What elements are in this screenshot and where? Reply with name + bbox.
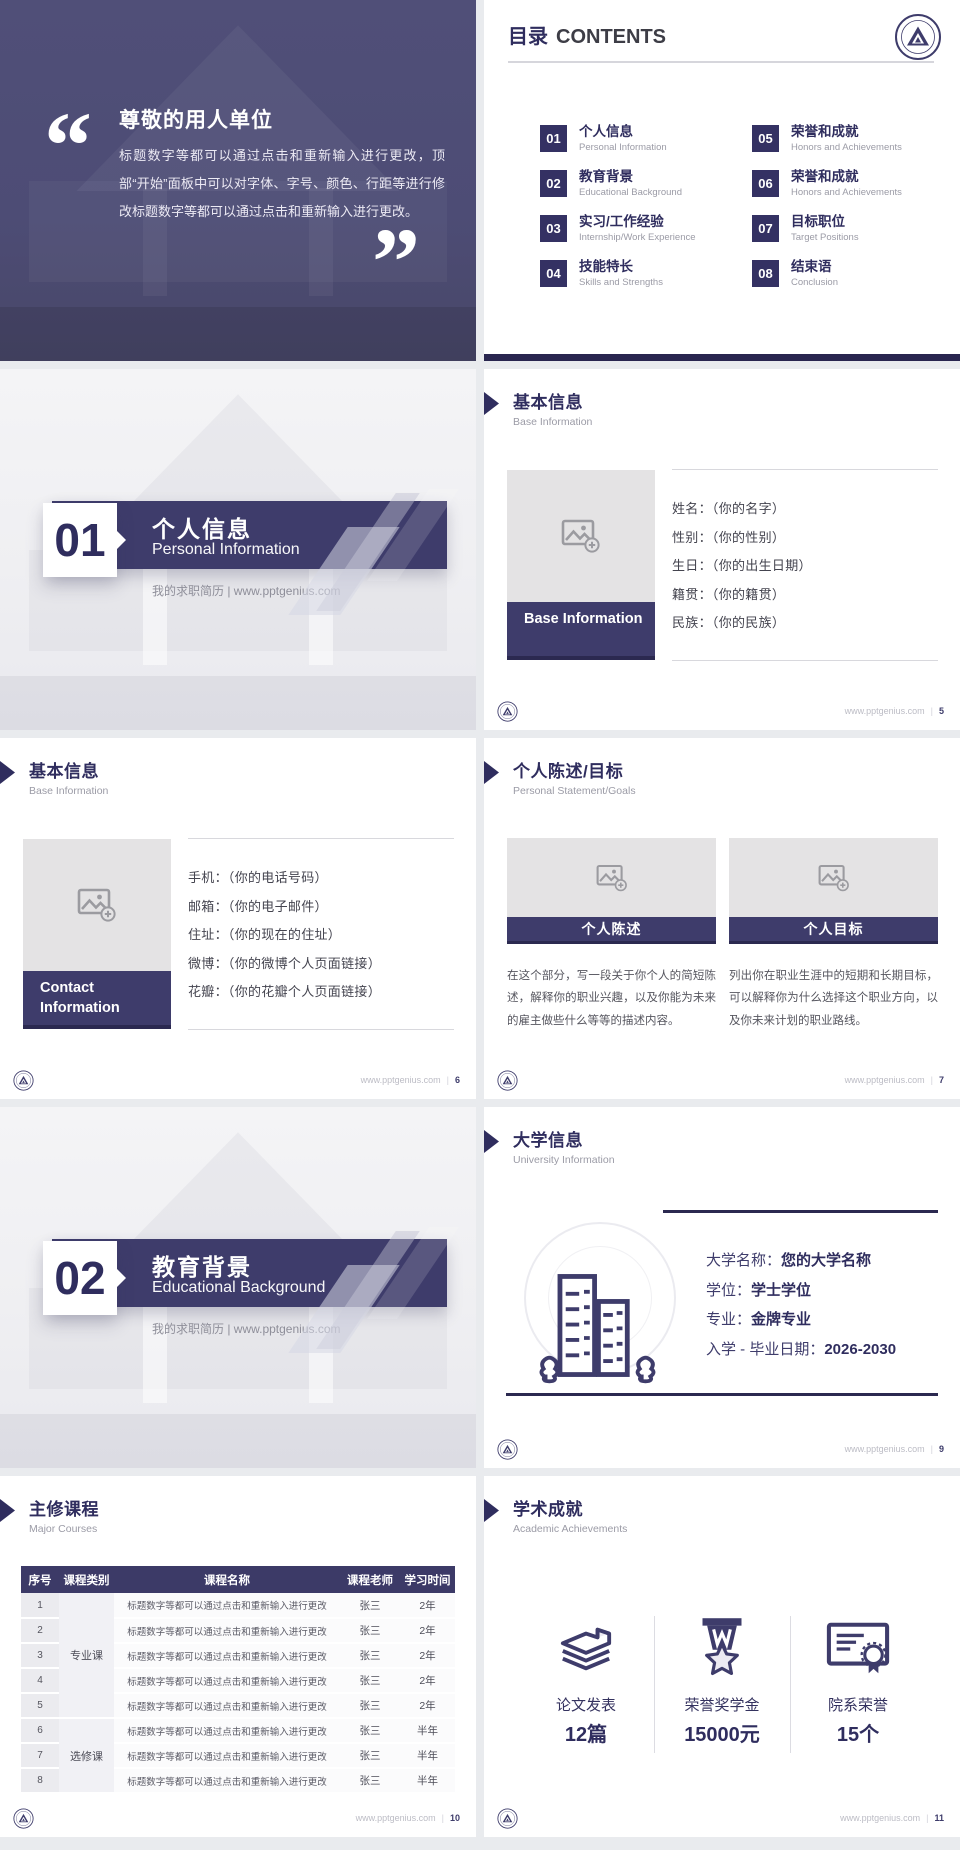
photo-placeholder-block: Contact Information (23, 839, 171, 1029)
footer-divider: | (931, 706, 933, 716)
courses-table: 序号 课程类别 课程名称 课程老师 学习时间 1 专业课 标题数字等都可以通过点… (21, 1566, 455, 1794)
header-title-zh: 主修课程 (29, 1495, 99, 1520)
footer-divider: | (447, 1075, 449, 1085)
item-title-en: Honors and Achievements (791, 187, 902, 198)
item-number-badge: 01 (540, 125, 567, 152)
header-title-zh: 基本信息 (29, 757, 108, 782)
section-title-en: Personal Information (152, 541, 300, 559)
cell-no: 5 (21, 1693, 59, 1718)
section-tagline: 我的求职简历 | www.pptgenius.com (152, 582, 341, 599)
section-number-card: 02 (43, 1241, 117, 1315)
field-university-name: 大学名称：您的大学名称 (706, 1246, 896, 1276)
papers-icon (555, 1614, 617, 1678)
footer-divider: | (442, 1813, 444, 1823)
item-title-en: Personal Information (579, 142, 667, 153)
field-ethnicity: 民族：（你的民族） (672, 609, 938, 638)
col-header-category: 课程类别 (59, 1566, 114, 1593)
placeholder-caption: Contact Information (23, 971, 171, 1029)
section-number: 02 (54, 1251, 105, 1305)
contents-item-6: 06 荣誉和成就Honors and Achievements (752, 170, 952, 197)
placeholder-caption: Base Information (507, 602, 655, 660)
field-value: 您的大学名称 (781, 1252, 871, 1269)
header-arrow-icon (484, 392, 499, 415)
cell-duration: 2年 (400, 1668, 455, 1693)
stat-value: 12篇 (565, 1718, 607, 1747)
cell-teacher: 张三 (340, 1743, 400, 1768)
col-header-name: 课程名称 (114, 1566, 340, 1593)
cell-no: 8 (21, 1768, 59, 1793)
footer-site-text: www.pptgenius.com (845, 1444, 925, 1454)
field-label: 学位： (706, 1282, 751, 1299)
header-arrow-icon (0, 761, 15, 784)
field-birthday: 生日：（你的出生日期） (672, 552, 938, 581)
image-placeholder (507, 470, 655, 602)
add-image-icon (596, 863, 628, 893)
card-top-accent-line (663, 1210, 938, 1213)
cell-duration: 2年 (400, 1618, 455, 1643)
cell-duration: 2年 (400, 1693, 455, 1718)
university-building-icon (534, 1257, 659, 1399)
item-title-en: Conclusion (791, 277, 838, 288)
university-fields: 大学名称：您的大学名称 学位：学士学位 专业：金牌专业 入学 - 毕业日期：20… (706, 1246, 896, 1364)
item-number-badge: 06 (752, 170, 779, 197)
header-arrow-icon (484, 1499, 499, 1522)
section-header: 基本信息 Base Information (484, 388, 592, 428)
item-title-en: Skills and Strengths (579, 277, 663, 288)
footer-page-number: 9 (939, 1444, 944, 1454)
contents-left-column: 01 个人信息Personal Information 02 教育背景Educa… (540, 125, 740, 287)
slide-footer: www.pptgenius.com|5 (497, 699, 944, 723)
item-number-badge: 04 (540, 260, 567, 287)
cell-duration: 2年 (400, 1593, 455, 1618)
header-title-en: Major Courses (29, 1523, 99, 1535)
item-title-zh: 技能特长 (579, 260, 663, 275)
bottom-accent-bar (484, 354, 960, 361)
stat-value: 15000元 (684, 1718, 760, 1747)
slide-section-cover-2: 教育背景 Educational Background 02 我的求职简历 | … (0, 1107, 476, 1468)
header-title-zh: 大学信息 (513, 1126, 615, 1151)
fields-list: 手机：（你的电话号码） 邮箱：（你的电子邮件） 住址：（你的现在的住址） 微博：… (188, 838, 454, 1030)
contents-item-4: 04 技能特长Skills and Strengths (540, 260, 740, 287)
cell-teacher: 张三 (340, 1693, 400, 1718)
cell-course-name: 标题数字等都可以通过点击和重新输入进行更改 (114, 1718, 340, 1743)
cell-course-name: 标题数字等都可以通过点击和重新输入进行更改 (114, 1768, 340, 1793)
item-title-en: Internship/Work Experience (579, 232, 696, 243)
medal-icon (696, 1614, 748, 1678)
contents-item-1: 01 个人信息Personal Information (540, 125, 740, 152)
cell-category: 选修课 (59, 1718, 114, 1793)
slide-university-information: 大学信息 University Information (484, 1107, 960, 1468)
goals-caption: 个人目标 (729, 917, 938, 944)
stat-scholarship: 荣誉奖学金 15000元 (654, 1614, 790, 1755)
header-title-en: Base Information (29, 785, 108, 797)
item-title-zh: 荣誉和成就 (791, 170, 902, 185)
stat-label: 荣誉奖学金 (684, 1694, 759, 1715)
stat-value: 15个 (837, 1718, 879, 1747)
cell-teacher: 张三 (340, 1668, 400, 1693)
header-arrow-icon (484, 761, 499, 784)
contents-divider (508, 61, 934, 63)
table-header-row: 序号 课程类别 课程名称 课程老师 学习时间 (21, 1566, 455, 1593)
header-title-zh: 个人陈述/目标 (513, 757, 636, 782)
statement-text: 在这个部分，写一段关于你个人的简短陈述，解释你的职业兴趣，以及你能为未来的雇主做… (507, 965, 716, 1032)
footer-divider: | (926, 1813, 928, 1823)
cell-no: 3 (21, 1643, 59, 1668)
cell-course-name: 标题数字等都可以通过点击和重新输入进行更改 (114, 1743, 340, 1768)
slide-academic-achievements: 学术成就 Academic Achievements 论文发表 12篇 (484, 1476, 960, 1837)
card-arrow-icon (117, 1269, 126, 1287)
field-address: 住址：（你的现在的住址） (188, 921, 454, 950)
item-title-zh: 荣誉和成就 (791, 125, 902, 140)
statement-caption: 个人陈述 (507, 917, 716, 944)
contents-item-3: 03 实习/工作经验Internship/Work Experience (540, 215, 740, 242)
slide-contents: 目录CONTENTS 01 个人信息Personal Information 0… (484, 0, 960, 361)
cell-course-name: 标题数字等都可以通过点击和重新输入进行更改 (114, 1618, 340, 1643)
item-title-zh: 实习/工作经验 (579, 215, 696, 230)
stat-honors: 院系荣誉 15个 (790, 1614, 926, 1755)
field-label: 入学 - 毕业日期： (706, 1341, 824, 1358)
item-title-zh: 结束语 (791, 260, 838, 275)
field-email: 邮箱：（你的电子邮件） (188, 893, 454, 922)
university-seal-logo (13, 1070, 34, 1091)
item-title-en: Educational Background (579, 187, 682, 198)
footer-site-text: www.pptgenius.com (840, 1813, 920, 1823)
header-title-zh: 学术成就 (513, 1495, 627, 1520)
footer-page-number: 6 (455, 1075, 460, 1085)
contents-item-8: 08 结束语Conclusion (752, 260, 952, 287)
field-enrollment-dates: 入学 - 毕业日期：2026-2030 (706, 1335, 896, 1365)
contents-title: 目录CONTENTS (508, 20, 666, 49)
contents-title-zh: 目录 (508, 26, 548, 48)
item-number-badge: 02 (540, 170, 567, 197)
field-hometown: 籍贯：（你的籍贯） (672, 581, 938, 610)
field-gender: 性别：（你的性别） (672, 524, 938, 553)
footer-site-text: www.pptgenius.com (356, 1813, 436, 1823)
item-number-badge: 03 (540, 215, 567, 242)
university-seal-logo (497, 1808, 518, 1829)
add-image-icon (818, 863, 850, 893)
item-title-zh: 个人信息 (579, 125, 667, 140)
contents-item-7: 07 目标职位Target Positions (752, 215, 952, 242)
header-title-en: Academic Achievements (513, 1523, 627, 1535)
goals-text: 列出你在职业生涯中的短期和长期目标，可以解释你为什么选择这个职业方向，以及你未来… (729, 965, 938, 1032)
col-header-duration: 学习时间 (400, 1566, 455, 1593)
section-header: 个人陈述/目标 Personal Statement/Goals (484, 757, 636, 797)
field-huaban: 花瓣：（你的花瓣个人页面链接） (188, 978, 454, 1007)
cell-course-name: 标题数字等都可以通过点击和重新输入进行更改 (114, 1693, 340, 1718)
slide-section-cover-1: 个人信息 Personal Information 01 我的求职简历 | ww… (0, 369, 476, 730)
footer-site-text: www.pptgenius.com (845, 1075, 925, 1085)
contents-right-column: 05 荣誉和成就Honors and Achievements 06 荣誉和成就… (752, 125, 952, 287)
cell-no: 6 (21, 1718, 59, 1743)
university-seal-logo (497, 701, 518, 722)
cell-course-name: 标题数字等都可以通过点击和重新输入进行更改 (114, 1593, 340, 1618)
header-title-en: Personal Statement/Goals (513, 785, 636, 797)
contents-item-5: 05 荣誉和成就Honors and Achievements (752, 125, 952, 152)
university-seal-logo (13, 1808, 34, 1829)
stat-publications: 论文发表 12篇 (518, 1614, 654, 1755)
footer-page-number: 7 (939, 1075, 944, 1085)
fields-list: 姓名：（你的名字） 性别：（你的性别） 生日：（你的出生日期） 籍贯：（你的籍贯… (672, 469, 938, 661)
item-title-en: Honors and Achievements (791, 142, 902, 153)
achievement-stats: 论文发表 12篇 荣誉奖学金 15000元 (518, 1614, 926, 1755)
col-header-teacher: 课程老师 (340, 1566, 400, 1593)
field-degree: 学位：学士学位 (706, 1276, 896, 1306)
card-bottom-accent-line (506, 1393, 938, 1396)
cell-course-name: 标题数字等都可以通过点击和重新输入进行更改 (114, 1643, 340, 1668)
cell-teacher: 张三 (340, 1643, 400, 1668)
cell-duration: 2年 (400, 1643, 455, 1668)
slide-major-courses: 主修课程 Major Courses 序号 课程类别 课程名称 课程老师 学习时… (0, 1476, 476, 1837)
footer-page-number: 11 (934, 1813, 944, 1823)
template-preview-sheet: “ 尊敬的用人单位 标题数字等都可以通过点击和重新输入进行更改，顶部“开始”面板… (0, 0, 960, 1837)
image-placeholder (729, 838, 938, 917)
field-major: 专业：金牌专业 (706, 1305, 896, 1335)
section-title-en: Educational Background (152, 1279, 325, 1297)
cell-duration: 半年 (400, 1743, 455, 1768)
cell-duration: 半年 (400, 1718, 455, 1743)
cell-teacher: 张三 (340, 1618, 400, 1643)
section-header: 学术成就 Academic Achievements (484, 1495, 627, 1535)
university-seal-logo (497, 1070, 518, 1091)
header-title-zh: 基本信息 (513, 388, 592, 413)
footer-divider: | (931, 1075, 933, 1085)
contents-item-2: 02 教育背景Educational Background (540, 170, 740, 197)
slide-greeting-quote: “ 尊敬的用人单位 标题数字等都可以通过点击和重新输入进行更改，顶部“开始”面板… (0, 0, 476, 361)
statement-column: 个人陈述 在这个部分，写一段关于你个人的简短陈述，解释你的职业兴趣，以及你能为未… (507, 838, 716, 1032)
field-value: 金牌专业 (751, 1311, 811, 1328)
image-placeholder (23, 839, 171, 971)
footer-page-number: 5 (939, 706, 944, 716)
header-title-en: University Information (513, 1154, 615, 1166)
section-title-zh: 个人信息 (152, 510, 252, 544)
item-title-en: Target Positions (791, 232, 859, 243)
slide-footer: www.pptgenius.com|10 (13, 1806, 460, 1830)
field-value: 2026-2030 (824, 1341, 896, 1358)
certificate-icon (826, 1614, 890, 1678)
cell-duration: 半年 (400, 1768, 455, 1793)
photo-placeholder-block: Base Information (507, 470, 655, 660)
footer-site-text: www.pptgenius.com (361, 1075, 441, 1085)
item-title-zh: 目标职位 (791, 215, 859, 230)
add-image-icon (561, 517, 601, 555)
field-weibo: 微博：（你的微博个人页面链接） (188, 950, 454, 979)
field-phone: 手机：（你的电话号码） (188, 864, 454, 893)
add-image-icon (77, 886, 117, 924)
section-header: 大学信息 University Information (484, 1126, 615, 1166)
section-title-zh: 教育背景 (152, 1248, 252, 1282)
slide-contact-information: 基本信息 Base Information Contact Informatio… (0, 738, 476, 1099)
cell-no: 1 (21, 1593, 59, 1618)
footer-page-number: 10 (450, 1813, 460, 1823)
cell-course-name: 标题数字等都可以通过点击和重新输入进行更改 (114, 1668, 340, 1693)
stat-label: 论文发表 (556, 1694, 616, 1715)
slide-personal-statement-goals: 个人陈述/目标 Personal Statement/Goals 个人陈述 在这… (484, 738, 960, 1099)
cell-teacher: 张三 (340, 1718, 400, 1743)
section-header: 主修课程 Major Courses (0, 1495, 99, 1535)
quote-title: 尊敬的用人单位 (119, 104, 273, 134)
footer-site-text: www.pptgenius.com (845, 706, 925, 716)
slide-footer: www.pptgenius.com|9 (497, 1437, 944, 1461)
cell-teacher: 张三 (340, 1768, 400, 1793)
item-number-badge: 07 (752, 215, 779, 242)
header-arrow-icon (484, 1130, 499, 1153)
section-header: 基本信息 Base Information (0, 757, 108, 797)
table-row: 1 专业课 标题数字等都可以通过点击和重新输入进行更改 张三 2年 (21, 1593, 455, 1618)
field-name: 姓名：（你的名字） (672, 495, 938, 524)
image-placeholder (507, 838, 716, 917)
university-seal-logo (497, 1439, 518, 1460)
cell-no: 2 (21, 1618, 59, 1643)
slide-base-information: 基本信息 Base Information Base Information 姓… (484, 369, 960, 730)
slide-footer: www.pptgenius.com|6 (13, 1068, 460, 1092)
card-arrow-icon (117, 531, 126, 549)
cell-category: 专业课 (59, 1593, 114, 1718)
section-number: 01 (54, 513, 105, 567)
header-title-en: Base Information (513, 416, 592, 428)
stat-label: 院系荣誉 (828, 1694, 888, 1715)
cell-teacher: 张三 (340, 1593, 400, 1618)
section-number-card: 01 (43, 503, 117, 577)
field-value: 学士学位 (751, 1282, 811, 1299)
item-title-zh: 教育背景 (579, 170, 682, 185)
goals-column: 个人目标 列出你在职业生涯中的短期和长期目标，可以解释你为什么选择这个职业方向，… (729, 838, 938, 1032)
cell-no: 4 (21, 1668, 59, 1693)
item-number-badge: 05 (752, 125, 779, 152)
university-seal-logo (894, 13, 942, 66)
cell-no: 7 (21, 1743, 59, 1768)
slide-footer: www.pptgenius.com|11 (497, 1806, 944, 1830)
field-label: 专业： (706, 1311, 751, 1328)
section-tagline: 我的求职简历 | www.pptgenius.com (152, 1320, 341, 1337)
header-arrow-icon (0, 1499, 15, 1522)
table-row: 6 选修课 标题数字等都可以通过点击和重新输入进行更改 张三 半年 (21, 1718, 455, 1743)
footer-divider: | (931, 1444, 933, 1454)
col-header-no: 序号 (21, 1566, 59, 1593)
slide-footer: www.pptgenius.com|7 (497, 1068, 944, 1092)
field-label: 大学名称： (706, 1252, 781, 1269)
item-number-badge: 08 (752, 260, 779, 287)
contents-title-en: CONTENTS (556, 26, 666, 48)
